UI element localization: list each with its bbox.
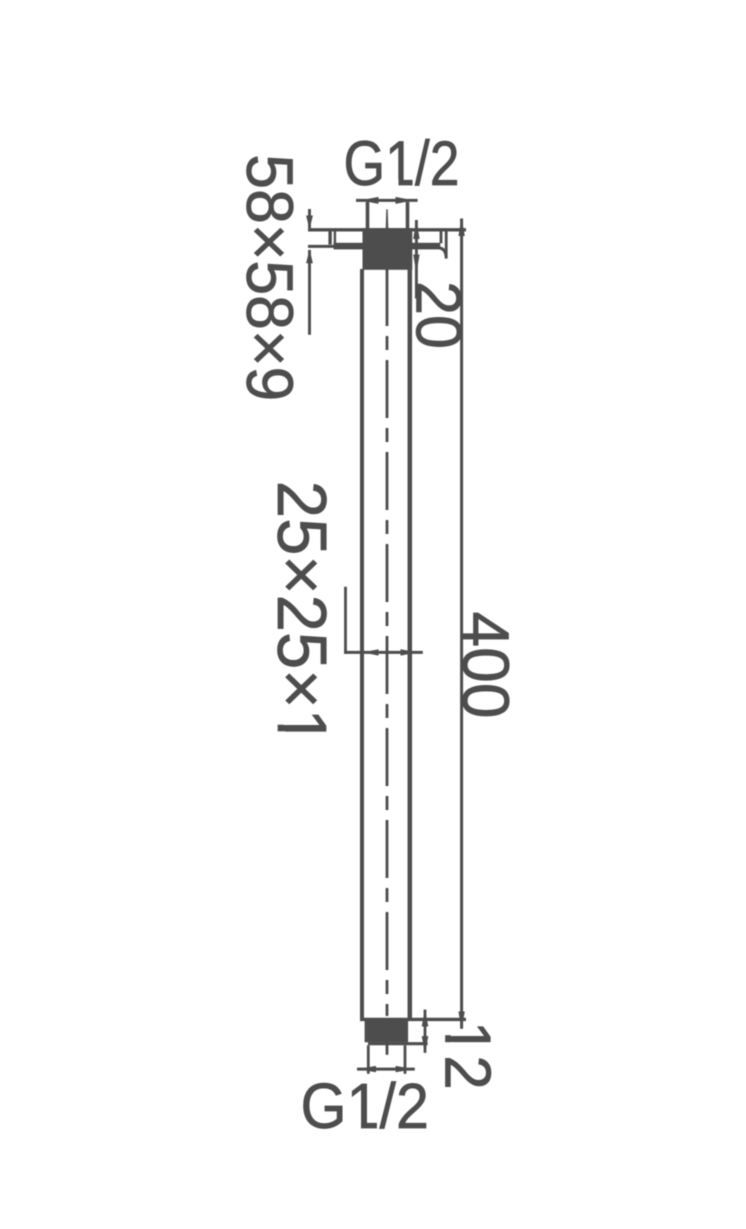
svg-text:G1/2: G1/2 [300, 1070, 429, 1142]
svg-text:12: 12 [431, 1021, 504, 1090]
svg-text:G1/2: G1/2 [344, 129, 460, 199]
svg-text:20: 20 [403, 281, 475, 349]
svg-text:400: 400 [449, 612, 523, 719]
svg-text:25×25×1: 25×25×1 [263, 481, 341, 746]
svg-text:58×58×9: 58×58×9 [233, 154, 307, 401]
